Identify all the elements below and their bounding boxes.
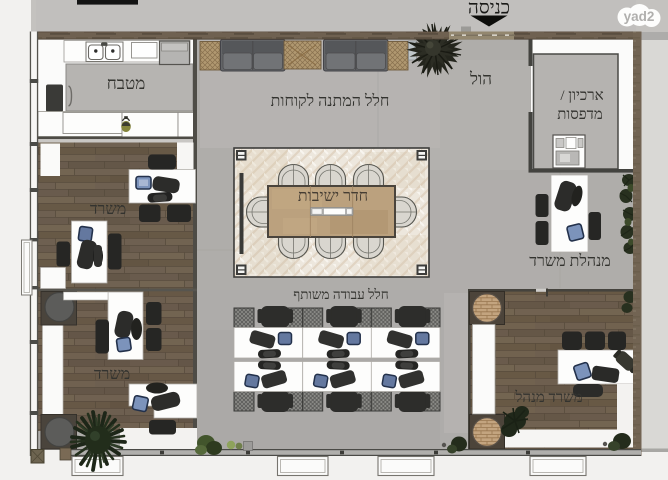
svg-text:מדפסות: מדפסות (557, 107, 603, 123)
svg-text:הול: הול (469, 70, 492, 89)
svg-text:yad2: yad2 (624, 9, 655, 24)
svg-text:חלל עבודה משותף: חלל עבודה משותף (293, 287, 388, 302)
svg-text:חלל המתנה לקוחות: חלל המתנה לקוחות (271, 92, 390, 110)
svg-text:מנהלת משרד: מנהלת משרד (529, 252, 611, 270)
svg-text:ארכיון /: ארכיון / (560, 88, 603, 104)
svg-text:חדר ישיבות: חדר ישיבות (298, 188, 368, 205)
svg-text:משרד: משרד (94, 366, 130, 383)
svg-text:מטבח: מטבח (107, 74, 146, 93)
svg-text:משרד: משרד (90, 201, 126, 218)
svg-text:משרד מנהל: משרד מנהל (514, 389, 582, 406)
